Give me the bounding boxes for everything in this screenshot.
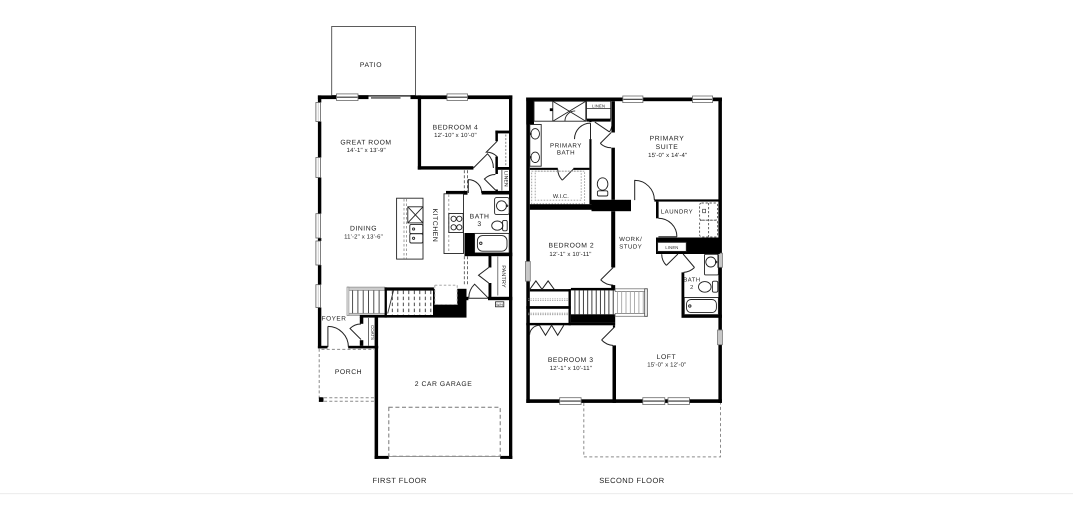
svg-text:BEDROOM 4: BEDROOM 4: [433, 124, 479, 131]
svg-text:COATS: COATS: [370, 325, 375, 340]
svg-text:LINEN: LINEN: [665, 245, 678, 250]
svg-text:BATH: BATH: [683, 277, 700, 283]
svg-text:FIRST FLOOR: FIRST FLOOR: [372, 476, 427, 485]
svg-text:BATH: BATH: [557, 150, 575, 157]
svg-text:2: 2: [690, 284, 694, 291]
svg-text:11'-2" x 13'-6": 11'-2" x 13'-6": [344, 233, 383, 240]
svg-text:LAUNDRY: LAUNDRY: [661, 209, 693, 216]
svg-text:12'-10" x 10'-0": 12'-10" x 10'-0": [434, 132, 477, 139]
svg-text:BEDROOM 3: BEDROOM 3: [548, 357, 594, 364]
svg-text:BATH: BATH: [470, 214, 490, 221]
svg-text:12'-1" x 10'-11": 12'-1" x 10'-11": [550, 365, 592, 372]
svg-text:FOYER: FOYER: [322, 316, 347, 323]
svg-text:SUITE: SUITE: [656, 144, 679, 151]
svg-text:14'-1" x 13'-9": 14'-1" x 13'-9": [347, 147, 386, 154]
svg-text:GREAT ROOM: GREAT ROOM: [340, 140, 391, 147]
svg-text:15'-0" x 14'-4": 15'-0" x 14'-4": [648, 152, 687, 159]
svg-text:PORCH: PORCH: [335, 369, 362, 376]
svg-text:DINING: DINING: [350, 225, 377, 232]
svg-text:15'-0" x 12'-0": 15'-0" x 12'-0": [647, 361, 686, 368]
svg-text:2 CAR GARAGE: 2 CAR GARAGE: [415, 381, 473, 388]
svg-text:KITCHEN: KITCHEN: [431, 209, 438, 243]
svg-text:W.I.C.: W.I.C.: [553, 194, 569, 200]
svg-text:LINEN: LINEN: [592, 103, 605, 108]
svg-text:W/H: W/H: [496, 303, 503, 307]
svg-text:LOFT: LOFT: [657, 354, 677, 361]
svg-text:LINEN: LINEN: [502, 171, 508, 187]
svg-text:WORK/: WORK/: [619, 236, 642, 243]
svg-text:PANTRY: PANTRY: [500, 265, 506, 288]
svg-text:PRIMARY: PRIMARY: [550, 142, 582, 149]
svg-text:STUDY: STUDY: [619, 243, 642, 250]
svg-text:PATIO: PATIO: [360, 62, 382, 69]
svg-text:PRIMARY: PRIMARY: [650, 136, 685, 143]
svg-text:BEDROOM 2: BEDROOM 2: [549, 243, 595, 250]
svg-text:SECOND FLOOR: SECOND FLOOR: [599, 476, 665, 485]
svg-text:12'-1" x 10'-11": 12'-1" x 10'-11": [549, 251, 591, 258]
svg-text:3: 3: [477, 221, 481, 228]
